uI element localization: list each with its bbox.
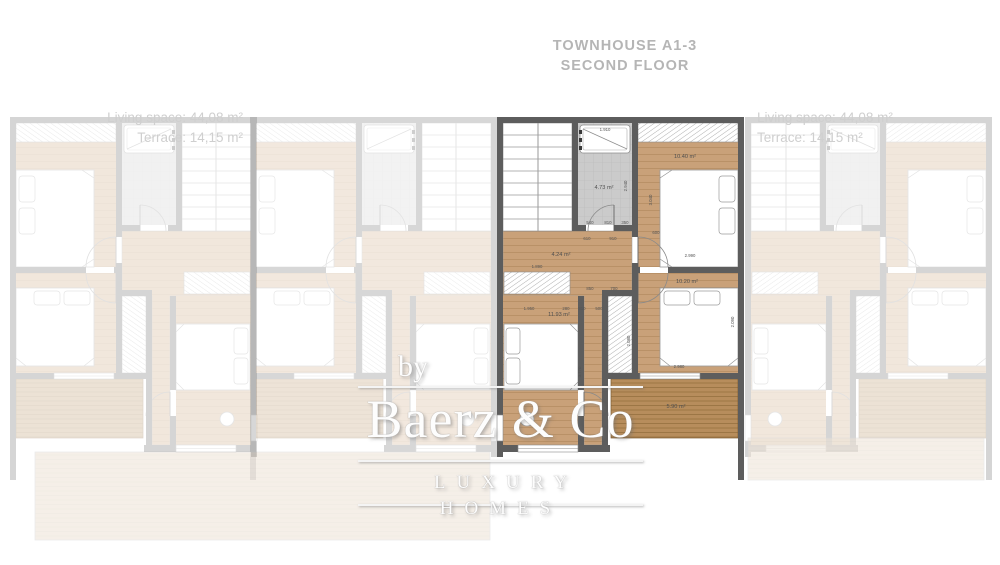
- bedroom2-bed: [660, 288, 738, 366]
- left-living-space-label: Living space: 44,08 m²: [58, 108, 243, 128]
- faded-neighbor-unit-right: [745, 117, 992, 480]
- dimension-label: 350: [621, 220, 629, 225]
- dimension-label: 910: [609, 236, 617, 241]
- bedroom3-wardrobe: [504, 272, 570, 294]
- dimension-label: 3.770: [577, 366, 582, 377]
- bathroom-area-label: 4.73 m²: [595, 185, 614, 191]
- dimension-label: 810: [578, 306, 586, 311]
- terrace-area-label: 5.90 m²: [667, 404, 686, 410]
- right-terrace-label: Terrace: 14,15 m²: [757, 128, 977, 148]
- dimension-label: 2.990: [685, 253, 696, 258]
- dimension-label: 700: [610, 286, 618, 291]
- floorplan-page: 4.73 m²4.24 m²10.40 m²10.20 m²11.93 m²5.…: [0, 0, 1000, 565]
- unit-geometry: [497, 117, 744, 480]
- dimension-label: 540: [586, 220, 594, 225]
- right-unit-stats: Living space: 44,08 m² Terrace: 14,15 m²: [757, 108, 977, 148]
- bedroom3-area-label: 11.93 m²: [548, 312, 570, 318]
- dimension-label: 2.940: [623, 180, 628, 191]
- title-line-1: TOWNHOUSE A1-3: [500, 36, 750, 56]
- left-unit-stats: Living space: 44,08 m² Terrace: 14,15 m²: [58, 108, 243, 148]
- faded-right-terrace: [748, 438, 984, 480]
- dimension-label: 810: [604, 220, 612, 225]
- bedroom1-bed: [660, 170, 738, 267]
- faded-left-terrace: [35, 452, 490, 540]
- dimension-label: 500: [595, 306, 603, 311]
- staircase: [503, 123, 572, 231]
- floorplan-canvas: 4.73 m²4.24 m²10.40 m²10.20 m²11.93 m²5.…: [0, 0, 1000, 565]
- bedroom1-area-label: 10.40 m²: [674, 154, 696, 160]
- bedroom2-area-label: 10.20 m²: [676, 279, 698, 285]
- hall-closet: [608, 296, 632, 373]
- hall-area-label: 4.24 m²: [552, 252, 571, 258]
- dimension-label: 610: [583, 236, 591, 241]
- dimension-label: 850: [586, 286, 594, 291]
- dimension-label: 2.090: [730, 316, 735, 327]
- dimension-label: 1.890: [532, 264, 543, 269]
- dimension-label: 280: [562, 306, 570, 311]
- title-line-2: SECOND FLOOR: [500, 56, 750, 76]
- dimension-label: 2.080: [626, 335, 631, 346]
- dimension-label: 600: [652, 230, 660, 235]
- dimension-label: 2.980: [674, 364, 685, 369]
- bedroom3-bed: [504, 324, 578, 390]
- faded-neighbor-unit-far-left: [10, 117, 257, 480]
- dimension-label: 1.910: [600, 127, 611, 132]
- bedroom1-wardrobe: [638, 123, 738, 142]
- page-title: TOWNHOUSE A1-3 SECOND FLOOR: [500, 36, 750, 76]
- dimension-label: 3.040: [648, 194, 653, 205]
- right-living-space-label: Living space: 44,08 m²: [757, 108, 977, 128]
- dimension-label: 1.950: [524, 306, 535, 311]
- bedroom3-side-table: [520, 412, 534, 426]
- left-terrace-label: Terrace: 14,15 m²: [58, 128, 243, 148]
